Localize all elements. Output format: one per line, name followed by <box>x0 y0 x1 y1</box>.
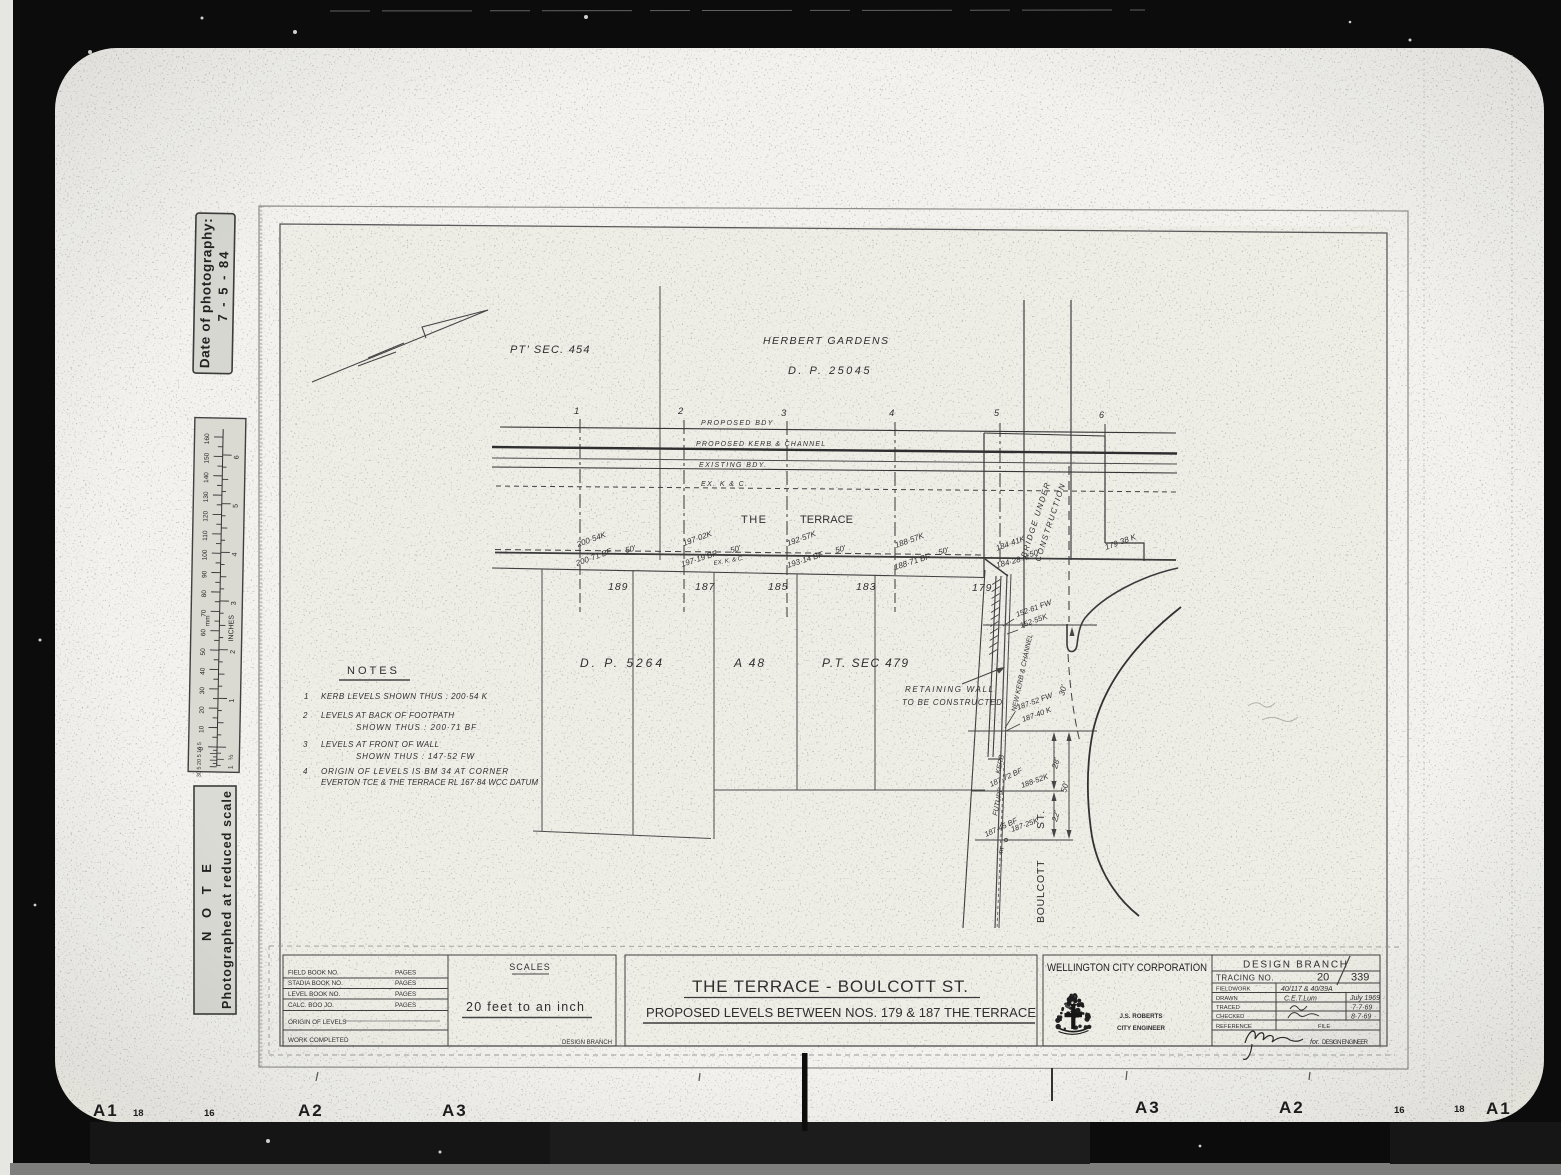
svg-text:PAGES: PAGES <box>395 970 416 977</box>
svg-text:339: 339 <box>1351 972 1369 984</box>
svg-text:4: 4 <box>303 767 308 776</box>
svg-text:LEVELS AT FRONT OF WALL: LEVELS AT FRONT OF WALL <box>321 740 439 749</box>
svg-text:CALC. BOO JO.: CALC. BOO JO. <box>288 1002 334 1009</box>
svg-text:DESIGN BRANCH: DESIGN BRANCH <box>562 1040 612 1046</box>
svg-text:DESIGN ENGINEER: DESIGN ENGINEER <box>1322 1040 1369 1046</box>
svg-text:1: 1 <box>574 406 579 417</box>
svg-text:CHECKED: CHECKED <box>1216 1014 1244 1020</box>
svg-text:A3: A3 <box>1135 1098 1161 1117</box>
svg-text:3: 3 <box>781 408 787 419</box>
svg-text:D. P. 25045: D. P. 25045 <box>788 365 873 377</box>
svg-text:WELLINGTON CITY CORPORATION: WELLINGTON CITY CORPORATION <box>1047 962 1207 974</box>
svg-text:NOTES: NOTES <box>347 665 400 677</box>
svg-text:ORIGIN OF LEVELS: ORIGIN OF LEVELS <box>288 1019 346 1026</box>
svg-text:PT’ SEC. 454: PT’ SEC. 454 <box>510 344 592 356</box>
svg-text:EX. K & C.: EX. K & C. <box>701 481 748 488</box>
svg-text:E: E <box>999 848 1004 855</box>
svg-text:REFERENCE: REFERENCE <box>1216 1024 1252 1030</box>
svg-text:185: 185 <box>768 581 789 593</box>
svg-text:40/117 & 40/39A: 40/117 & 40/39A <box>1281 986 1333 993</box>
svg-text:J.S. ROBERTS: J.S. ROBERTS <box>1120 1013 1163 1020</box>
svg-text:189: 189 <box>608 581 629 593</box>
svg-text:SHOWN THUS : 200·71 BF: SHOWN THUS : 200·71 BF <box>356 723 477 732</box>
svg-text:1: 1 <box>304 692 308 701</box>
svg-text:PAGES: PAGES <box>395 980 416 987</box>
svg-text:WORK COMPLETED: WORK COMPLETED <box>288 1037 349 1044</box>
svg-text:6: 6 <box>1099 410 1104 420</box>
svg-text:HERBERT GARDENS: HERBERT GARDENS <box>763 335 891 347</box>
svg-text:2: 2 <box>677 406 684 417</box>
svg-text:4: 4 <box>889 408 894 419</box>
svg-text:DRAWN: DRAWN <box>1216 996 1238 1002</box>
svg-text:PROPOSED BDY: PROPOSED BDY <box>701 420 774 427</box>
svg-text:179: 179 <box>972 582 993 594</box>
svg-text:D. P. 5264: D. P. 5264 <box>580 656 666 670</box>
svg-text:ORIGIN OF LEVELS IS BM 34 AT C: ORIGIN OF LEVELS IS BM 34 AT CORNER <box>321 767 508 776</box>
svg-text:C.E.T.Lum: C.E.T.Lum <box>1284 996 1317 1003</box>
svg-text:STADIA BOOK NO.: STADIA BOOK NO. <box>288 980 343 987</box>
svg-text:20 feet to an inch: 20 feet to an inch <box>466 1000 584 1014</box>
svg-text:KERB LEVELS SHOWN THUS : 200·5: KERB LEVELS SHOWN THUS : 200·54 K <box>321 692 488 701</box>
svg-text:16: 16 <box>204 1108 215 1119</box>
svg-text:8·7·69: 8·7·69 <box>1351 1014 1371 1021</box>
svg-text:183: 183 <box>856 581 877 593</box>
svg-text:TRACED: TRACED <box>1216 1005 1240 1011</box>
svg-text:CITY ENGINEER: CITY ENGINEER <box>1117 1025 1166 1032</box>
svg-text:3: 3 <box>303 740 308 749</box>
svg-text:16: 16 <box>1394 1105 1405 1116</box>
svg-text:7·7·69: 7·7·69 <box>1352 1005 1372 1012</box>
svg-text:18: 18 <box>133 1108 144 1119</box>
svg-text:PROPOSED LEVELS BETWEEN NOS: PROPOSED LEVELS BETWEEN NOS. 179 & 187 T… <box>646 1005 1036 1020</box>
svg-text:ST.: ST. <box>1035 809 1047 829</box>
svg-text:BOULCOTT: BOULCOTT <box>1035 859 1047 923</box>
svg-text:A2: A2 <box>298 1101 324 1120</box>
svg-text:THE: THE <box>741 514 768 526</box>
svg-text:P.T. SEC 479: P.T. SEC 479 <box>822 656 912 670</box>
svg-text:20: 20 <box>1317 972 1329 984</box>
svg-text:SHOWN THUS : 147·52 FW: SHOWN THUS : 147·52 FW <box>356 752 475 761</box>
svg-text:FIELDWORK: FIELDWORK <box>1216 987 1251 993</box>
svg-text:FIELD BOOK NO.: FIELD BOOK NO. <box>288 970 339 977</box>
svg-text:TO BE CONSTRUCTED: TO BE CONSTRUCTED <box>902 698 1002 707</box>
svg-text:187: 187 <box>695 581 716 593</box>
svg-text:18: 18 <box>1454 1104 1465 1115</box>
svg-text:TRACING NO.: TRACING NO. <box>1216 974 1274 983</box>
svg-text:EXISTING BDY.: EXISTING BDY. <box>699 462 768 469</box>
svg-text:SCALES: SCALES <box>509 962 551 972</box>
svg-text:PAGES: PAGES <box>395 1002 416 1009</box>
svg-text:LEVELS AT BACK OF FOOTPATH: LEVELS AT BACK OF FOOTPATH <box>321 711 454 720</box>
svg-text:for.: for. <box>1310 1039 1320 1046</box>
svg-text:FILE: FILE <box>1318 1024 1330 1030</box>
svg-text:A2: A2 <box>1279 1098 1305 1117</box>
svg-text:PROPOSED KERB & CHANNEL: PROPOSED KERB & CHANNEL <box>696 441 826 448</box>
svg-text:THE TERRACE - BOULCOTT ST.: THE TERRACE - BOULCOTT ST. <box>692 977 968 996</box>
svg-text:A1: A1 <box>93 1101 119 1120</box>
svg-text:EVERTON TCE & THE TERRACE RL 1: EVERTON TCE & THE TERRACE RL 167·84 WCC … <box>321 778 538 787</box>
svg-text:A 48: A 48 <box>733 656 768 670</box>
svg-text:July 1969: July 1969 <box>1349 995 1380 1002</box>
svg-text:A1: A1 <box>1486 1099 1512 1118</box>
svg-text:LEVEL BOOK NO.: LEVEL BOOK NO. <box>288 991 341 998</box>
svg-text:A3: A3 <box>442 1101 468 1120</box>
svg-text:PAGES: PAGES <box>395 991 416 998</box>
svg-text:2: 2 <box>302 711 308 720</box>
svg-text:TERRACE: TERRACE <box>800 514 853 526</box>
